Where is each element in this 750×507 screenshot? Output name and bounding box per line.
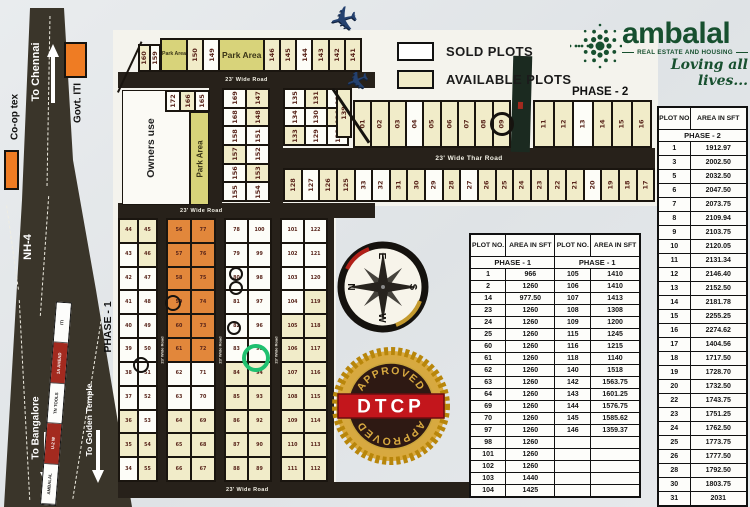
plot-61: 61: [167, 338, 191, 362]
plot-03: 03: [389, 101, 406, 147]
plot-102: 102: [281, 243, 304, 267]
plot-156: 156: [223, 164, 246, 183]
plot-106: 106: [281, 338, 304, 362]
plot-43: 43: [119, 243, 138, 267]
plot-69: 69: [191, 410, 215, 434]
plot-29: 29: [425, 169, 443, 201]
plot-165: 165: [195, 91, 209, 111]
plot-107: 107: [281, 362, 304, 386]
plot-166: 166: [180, 91, 194, 111]
plot-36: 36: [119, 410, 138, 434]
road-label: 23' Wide Road: [180, 208, 223, 214]
median-sign: AMBALAL: [41, 464, 58, 505]
plot-45: 45: [138, 219, 157, 243]
phase2-table-row: 281792.50: [658, 464, 747, 478]
plot-42: 42: [119, 267, 138, 291]
column-header: AREA IN SFT: [690, 107, 747, 130]
plot-85: 85: [225, 386, 248, 410]
park-area-strip: Park Area: [190, 112, 209, 205]
median-sign: U-2 W: [44, 423, 61, 464]
plot-144: 144: [296, 39, 312, 71]
to-golden-temple-label: To Golden Temple: [84, 384, 94, 457]
to-bangalore-label: To Bangalore: [31, 396, 42, 459]
park-area-label: Park Area: [196, 140, 205, 177]
plot-58: 58: [167, 267, 191, 291]
phase1-table-row: 6912601441576.75: [470, 401, 640, 413]
plot-73: 73: [191, 314, 215, 338]
legend-available-row: AVAILABLE PLOTS: [397, 70, 571, 89]
plot-119: 119: [304, 290, 327, 314]
phase2-table-row: 132152.50: [658, 282, 747, 296]
phase1-table-row: 981260: [470, 437, 640, 449]
plot-109: 109: [281, 410, 304, 434]
arrow-stem: [51, 57, 55, 103]
plot-13: 13: [573, 101, 593, 147]
plot-34: 34: [119, 457, 138, 481]
plot-46: 46: [138, 243, 157, 267]
plot-92: 92: [248, 410, 271, 434]
phase2-table-row: 32002.50: [658, 156, 747, 170]
plot-72: 72: [191, 338, 215, 362]
phase2-table-row: 122146.40: [658, 268, 747, 282]
compass-rose: E S W N: [335, 239, 431, 335]
road-dash: [6, 205, 19, 289]
plot-31: 31: [390, 169, 408, 201]
plot-block-phase2-lower: 1281271261253332313029282726252423222120…: [283, 168, 655, 202]
phase1-table-row: 212601061410: [470, 281, 640, 293]
phase1-table-row: 14977.501071413: [470, 293, 640, 305]
arrow-head-up: [47, 38, 59, 57]
road-vertical-3: 23' Wide Road: [272, 218, 280, 482]
plot-76: 76: [191, 243, 215, 267]
road-label: 23' Wide Road: [160, 336, 165, 363]
plot-143: 143: [312, 39, 328, 71]
median-sign: 1A AHEAD: [51, 343, 68, 384]
phase1-table-row: 2512601151245: [470, 329, 640, 341]
black-circle-mark: [229, 267, 243, 281]
plot-116: 116: [304, 362, 327, 386]
column-header: AREA IN SFT: [506, 234, 555, 257]
plot-56: 56: [167, 219, 191, 243]
plot-27: 27: [460, 169, 478, 201]
plot-105: 105: [281, 314, 304, 338]
road-vertical-1: 23' Wide Road: [158, 218, 166, 482]
plot-block-phase2-upper-a: 010203040506070809: [353, 100, 511, 148]
plot-block-phase1-col2: 5677577658755974607361726271637064696568…: [166, 218, 216, 482]
plot-70: 70: [191, 386, 215, 410]
dtcp-approved-seal: APPROVED APPROVED DTCP: [330, 345, 452, 467]
phase1-area-table: PLOT NO. AREA IN SFT PLOT NO. AREA IN SF…: [469, 233, 641, 498]
phase2-table-row: 82109.94: [658, 212, 747, 226]
phase1-table-row: 6212601401518: [470, 365, 640, 377]
column-header: PLOT NO.: [555, 234, 591, 257]
plot-52: 52: [138, 386, 157, 410]
phase2-table-row: 251773.75: [658, 436, 747, 450]
phase2-table-row: 221743.75: [658, 394, 747, 408]
plot-02: 02: [371, 101, 388, 147]
plot-147: 147: [246, 89, 269, 108]
plot-157: 157: [223, 145, 246, 164]
plot-75: 75: [191, 267, 215, 291]
road-label: 23' Wide Road: [225, 77, 268, 83]
plot-block-phase1-col1: 4445434642474148404939503851375236533554…: [118, 218, 158, 482]
phase1-table-body: 1966105141021260106141014977.50107141323…: [470, 269, 640, 498]
plot-22: 22: [548, 169, 566, 201]
arrow-stem: [96, 430, 100, 470]
brand-name: ambalal: [622, 20, 748, 47]
plot-04: 04: [406, 101, 423, 147]
plot-149: 149: [203, 39, 219, 71]
phase2-table-row: 201732.50: [658, 380, 747, 394]
plot-154: 154: [246, 182, 269, 201]
phase2-table-row: 62047.50: [658, 184, 747, 198]
column-header: PLOT NO: [658, 107, 690, 130]
black-circle-mark: [229, 281, 243, 295]
plot-110: 110: [281, 433, 304, 457]
plot-66: 66: [167, 457, 191, 481]
plot-131: 131: [305, 89, 326, 108]
plot-101: 101: [281, 219, 304, 243]
plot-79: 79: [225, 243, 248, 267]
phase1-table-row: 1011260: [470, 449, 640, 461]
available-plot-swatch: [397, 70, 434, 89]
plot-60: 60: [167, 314, 191, 338]
plot-122: 122: [304, 219, 327, 243]
govt-iti-label: Govt. ITI: [73, 83, 84, 123]
sold-plots-label: SOLD PLOTS: [446, 44, 533, 59]
phase1-table-row: 1041425: [470, 485, 640, 498]
logo-starburst-icon: [570, 18, 622, 74]
plot-118: 118: [304, 314, 327, 338]
phase1-table-row: 2412601091200: [470, 317, 640, 329]
plot-block-block-165: 172166165: [165, 90, 210, 112]
road-23-wide-top: 23' Wide Road: [118, 72, 375, 88]
phase2-table-row: 261777.50: [658, 450, 747, 464]
black-circle-mark: [165, 295, 181, 311]
phase1-label: PHASE - 1: [102, 301, 114, 352]
plot-87: 87: [225, 433, 248, 457]
compass-south: S: [407, 284, 418, 291]
plot-14: 14: [593, 101, 613, 147]
green-circle-mark: [242, 344, 270, 372]
phase2-table-body: 11912.9732002.5052032.5062047.5072073.75…: [658, 142, 747, 507]
plot-117: 117: [304, 338, 327, 362]
plot-115: 115: [304, 386, 327, 410]
arrow-to-chennai: [47, 38, 59, 103]
plot-146: 146: [264, 39, 280, 71]
plot-block-top-row: Park Area150149Park Area1461451441431421…: [160, 38, 362, 72]
plot-62: 62: [167, 362, 191, 386]
plot-07: 07: [458, 101, 475, 147]
road-vertical-2: 23' Wide Road: [216, 218, 224, 482]
plot-148: 148: [246, 108, 269, 127]
plot-block-phase1-col4: 1011221021211031201041191051181061171071…: [280, 218, 328, 482]
plot-103: 103: [281, 267, 304, 291]
plot-86: 86: [225, 410, 248, 434]
plot-93: 93: [248, 386, 271, 410]
phase2-table-row: 112131.34: [658, 254, 747, 268]
black-circle-mark: [227, 321, 241, 335]
plot-90: 90: [248, 433, 271, 457]
plot-158: 158: [223, 126, 246, 145]
plot-30: 30: [407, 169, 425, 201]
median-sign: TN TOOLS: [47, 383, 64, 424]
plot-141: 141: [345, 39, 361, 71]
govt-iti-building: [64, 42, 87, 78]
plot-169: 169: [223, 89, 246, 108]
phase2-table-row: 92103.75: [658, 226, 747, 240]
plot-65: 65: [167, 433, 191, 457]
road-vertical-park-left: [209, 88, 222, 203]
plot-24: 24: [513, 169, 531, 201]
road-label: 23' Wide Road: [274, 336, 279, 363]
black-circle-mark: [133, 357, 149, 373]
phase2-table-row: 142181.78: [658, 296, 747, 310]
column-header: AREA IN SFT: [591, 234, 640, 257]
phase2-table-row: 152255.25: [658, 310, 747, 324]
plot-142: 142: [329, 39, 345, 71]
available-plots-label: AVAILABLE PLOTS: [446, 72, 571, 87]
phase2-table-row: 312031: [658, 492, 747, 507]
plot-151: 151: [246, 126, 269, 145]
phase2-table-row: 191728.70: [658, 366, 747, 380]
plot-35: 35: [119, 433, 138, 457]
plot-54: 54: [138, 433, 157, 457]
plot-block-top-edge: 160159: [138, 44, 161, 72]
plot-park-area: Park Area: [219, 39, 264, 71]
owners-use-label: Owners use: [145, 118, 157, 178]
plot-53: 53: [138, 410, 157, 434]
compass-north: N: [345, 283, 356, 290]
plot-block-block-150s: 169147168148158151157152156153155154: [222, 88, 270, 202]
tagline-rule: [622, 52, 634, 54]
road-label: 23' Wide Road: [218, 336, 223, 363]
plot-16: 16: [632, 101, 652, 147]
plot-172: 172: [166, 91, 180, 111]
phase1-table-row: 6112601181140: [470, 353, 640, 365]
plot-74: 74: [191, 290, 215, 314]
plot-18: 18: [619, 169, 637, 201]
plot-11: 11: [534, 101, 554, 147]
plot-28: 28: [443, 169, 461, 201]
plot-17: 17: [637, 169, 655, 201]
plot-160: 160: [139, 45, 150, 71]
plot-159: 159: [150, 45, 161, 71]
plot-19: 19: [601, 169, 619, 201]
plot-134: 134: [284, 108, 305, 127]
black-circle-mark: [490, 112, 514, 136]
phase1-table-row: 1031440: [470, 473, 640, 485]
phase2-table-row: 102120.05: [658, 240, 747, 254]
road-label: 23' Wide Thar Road: [435, 155, 502, 162]
coop-tex-building: [4, 150, 19, 190]
phase2-label: PHASE - 2: [572, 86, 628, 98]
plot-41: 41: [119, 290, 138, 314]
section-header: PHASE - 1: [555, 257, 640, 269]
plot-55: 55: [138, 457, 157, 481]
plot-112: 112: [304, 457, 327, 481]
plot-48: 48: [138, 290, 157, 314]
plot-120: 120: [304, 267, 327, 291]
section-header: PHASE - 2: [658, 130, 747, 142]
plot-68: 68: [191, 433, 215, 457]
phase1-table-row: 2312601081308: [470, 305, 640, 317]
phase2-area-table: PLOT NO AREA IN SFT PHASE - 2 11912.9732…: [657, 106, 748, 507]
plot-108: 108: [281, 386, 304, 410]
plot-114: 114: [304, 410, 327, 434]
section-header: PHASE - 1: [470, 257, 555, 269]
plot-99: 99: [248, 243, 271, 267]
plot-32: 32: [372, 169, 390, 201]
channel-marker: [518, 102, 523, 109]
plot-49: 49: [138, 314, 157, 338]
median-sign: ITI: [54, 302, 71, 343]
phase2-table-row: 231751.25: [658, 408, 747, 422]
plot-128: 128: [284, 169, 302, 201]
road-23-wide-mid: 23' Wide Road: [118, 203, 375, 218]
phase1-table-row: 9712601461359.37: [470, 425, 640, 437]
plot-77: 77: [191, 219, 215, 243]
plot-145: 145: [280, 39, 296, 71]
plot-168: 168: [223, 108, 246, 127]
plot-layout-map: To Chennai NH-4 To Bangalore To Golden T…: [0, 0, 750, 507]
plot-88: 88: [225, 457, 248, 481]
plot-98: 98: [248, 267, 271, 291]
plot-113: 113: [304, 433, 327, 457]
plot-25: 25: [496, 169, 514, 201]
phase2-table-row: 52032.50: [658, 170, 747, 184]
to-chennai-label: To Chennai: [30, 42, 42, 101]
plot-153: 153: [246, 164, 269, 183]
plot-park-area: Park Area: [161, 39, 187, 71]
plot-37: 37: [119, 386, 138, 410]
plot-26: 26: [478, 169, 496, 201]
plot-71: 71: [191, 362, 215, 386]
phase2-table-row: 162274.62: [658, 324, 747, 338]
plot-155: 155: [223, 182, 246, 201]
plot-21: 21: [566, 169, 584, 201]
phase1-table-row: 6412601431601.25: [470, 389, 640, 401]
plot-06: 06: [441, 101, 458, 147]
coop-tex-label: Co-op tex: [10, 94, 21, 140]
legend-sold-row: SOLD PLOTS: [397, 42, 571, 61]
plot-150: 150: [187, 39, 203, 71]
plot-133: 133: [284, 126, 305, 145]
plot-57: 57: [167, 243, 191, 267]
plot-15: 15: [612, 101, 632, 147]
column-header: PLOT NO.: [470, 234, 506, 257]
tagline-rule: [736, 52, 748, 54]
plot-97: 97: [248, 290, 271, 314]
plot-40: 40: [119, 314, 138, 338]
phase1-table-row: 7012601451585.62: [470, 413, 640, 425]
brand-slogan: Loving all lives...: [622, 57, 748, 89]
plot-23: 23: [531, 169, 549, 201]
road-23-wide-bottom: 23' Wide Road: [118, 482, 485, 498]
phase2-table-row: 11912.97: [658, 142, 747, 156]
plot-05: 05: [423, 101, 440, 147]
road-label: 23' Wide Road: [226, 487, 269, 493]
phase2-table-row: 171404.56: [658, 338, 747, 352]
nh4-label: NH-4: [22, 234, 34, 260]
seal-dtcp-text: DTCP: [357, 397, 425, 418]
phase2-table-row: 301803.75: [658, 478, 747, 492]
phase1-table-row: 1021260: [470, 461, 640, 473]
phase1-table-row: 19661051410: [470, 269, 640, 281]
plot-127: 127: [302, 169, 320, 201]
plot-129: 129: [305, 126, 326, 145]
plot-135: 135: [284, 89, 305, 108]
phase1-table-row: 6012601161215: [470, 341, 640, 353]
plot-block-phase2-upper-b: 111213141516: [533, 100, 652, 148]
plot-78: 78: [225, 219, 248, 243]
legend: SOLD PLOTS AVAILABLE PLOTS: [397, 42, 571, 98]
plot-121: 121: [304, 243, 327, 267]
plot-89: 89: [248, 457, 271, 481]
phase1-table-row: 6312601421563.75: [470, 377, 640, 389]
compass-west: W: [376, 313, 387, 323]
plot-63: 63: [167, 386, 191, 410]
plot-104: 104: [281, 290, 304, 314]
plot-126: 126: [319, 169, 337, 201]
plot-130: 130: [305, 108, 326, 127]
plot-67: 67: [191, 457, 215, 481]
brand-tagline-row: REAL ESTATE AND HOUSING: [622, 49, 748, 56]
plot-12: 12: [554, 101, 574, 147]
brand-tagline: REAL ESTATE AND HOUSING: [637, 49, 733, 56]
phase2-table-row: 72073.75: [658, 198, 747, 212]
plot-152: 152: [246, 145, 269, 164]
plot-111: 111: [281, 457, 304, 481]
phase2-table-row: 241762.50: [658, 422, 747, 436]
plot-100: 100: [248, 219, 271, 243]
phase2-table-row: 181717.50: [658, 352, 747, 366]
arrow-head-down: [92, 470, 104, 489]
road-vertical-park-right: [270, 88, 283, 203]
plot-47: 47: [138, 267, 157, 291]
plot-44: 44: [119, 219, 138, 243]
plot-33: 33: [355, 169, 373, 201]
plot-96: 96: [248, 314, 271, 338]
plot-125: 125: [337, 169, 355, 201]
plot-20: 20: [584, 169, 602, 201]
road-23-wide-thar: 23' Wide Thar Road: [283, 148, 655, 168]
compass-east: E: [376, 253, 387, 260]
sold-plot-swatch: [397, 42, 434, 61]
plot-64: 64: [167, 410, 191, 434]
company-logo: ambalal REAL ESTATE AND HOUSING Loving a…: [570, 6, 748, 89]
